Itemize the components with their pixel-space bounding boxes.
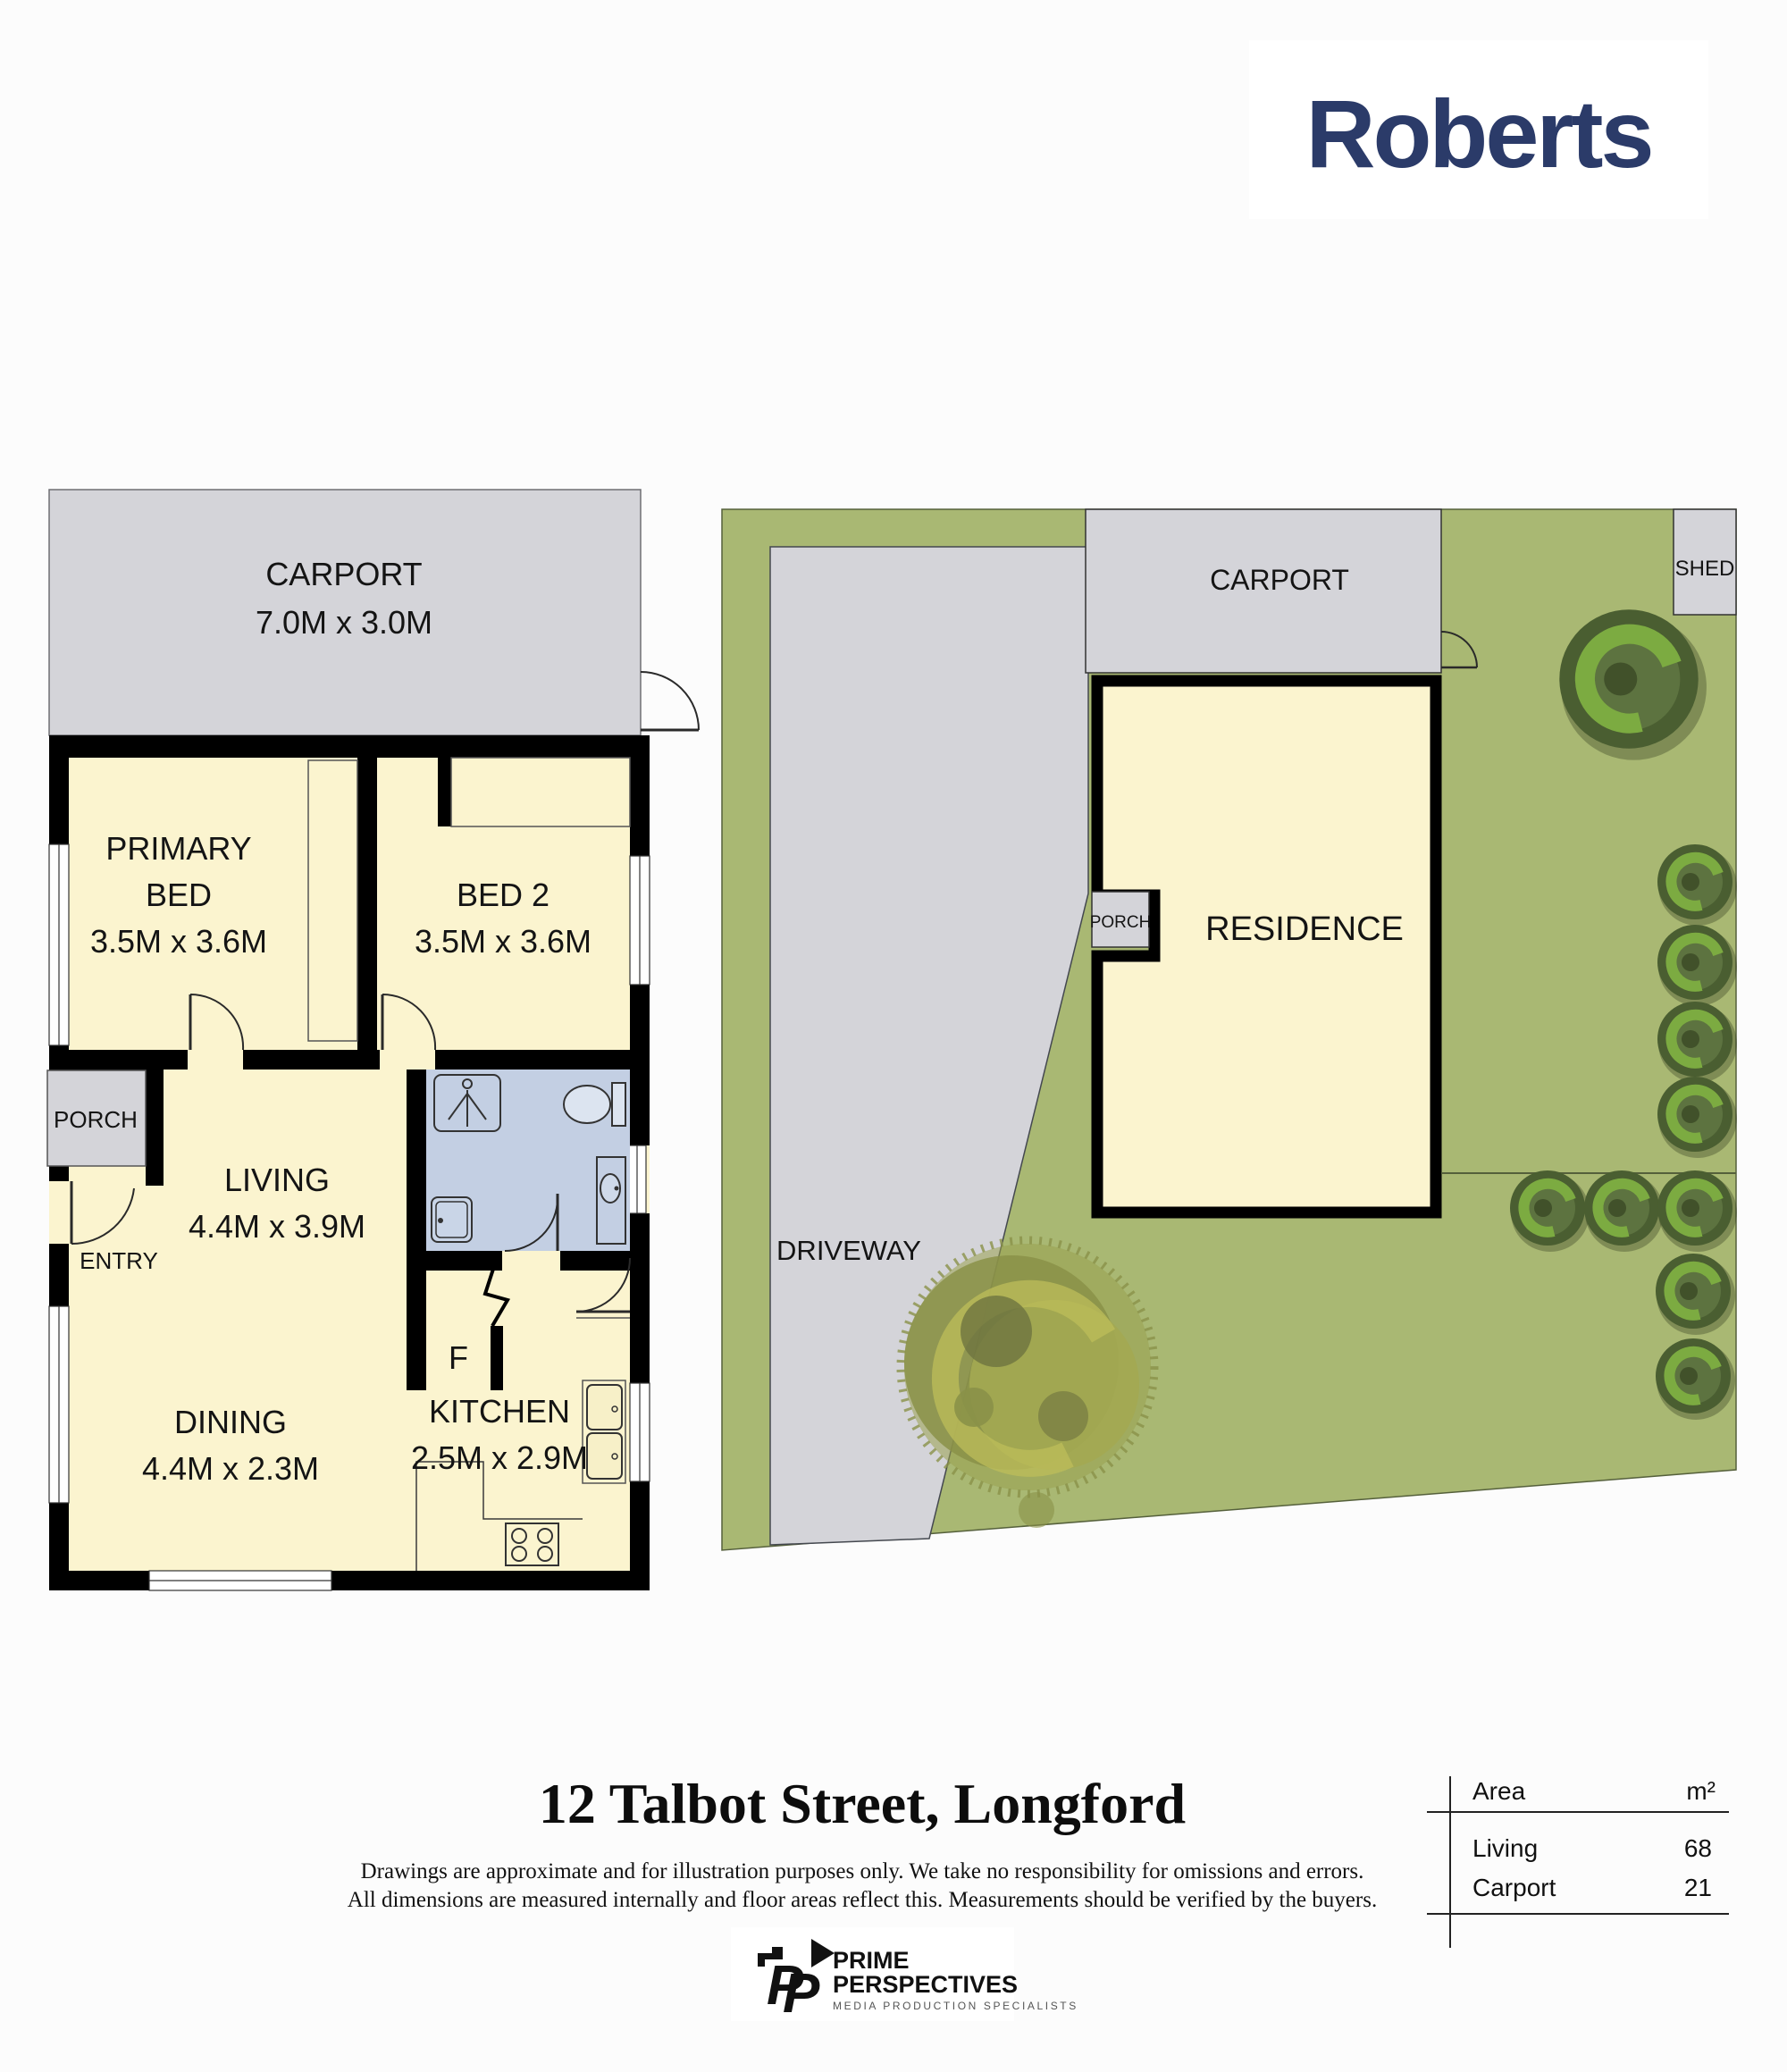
vanity-basin — [597, 1157, 625, 1244]
living-dims: 4.4M x 3.9M — [189, 1208, 365, 1245]
site-residence-label: RESIDENCE — [1205, 910, 1404, 948]
area-table-header-label: Area — [1472, 1777, 1526, 1805]
fp-porch-label: PORCH — [54, 1106, 138, 1133]
fp-kitchen-dims: 2.5M x 2.9M — [411, 1439, 588, 1476]
disclaimer-line-2: All dimensions are measured internally a… — [348, 1888, 1377, 1912]
site-carport-label: CARPORT — [1210, 564, 1349, 596]
bed2-dims: 3.5M x 3.6M — [415, 923, 591, 960]
floorplan-page: Roberts — [0, 0, 1787, 2072]
window-kitchen — [630, 1383, 650, 1481]
area-row-label: Carport — [1472, 1874, 1556, 1901]
prime-perspectives-logo: P P PRIME PERSPECTIVES MEDIA PRODUCTION … — [731, 1927, 1078, 2025]
window-bed2 — [630, 856, 650, 985]
primary-bed-wardrobe — [308, 760, 357, 1041]
roberts-logo: Roberts — [1249, 40, 1708, 219]
stove-cooktop — [506, 1523, 558, 1565]
bed2-label: BED 2 — [457, 877, 550, 913]
roberts-logo-text: Roberts — [1305, 80, 1651, 188]
window-bottom — [149, 1571, 331, 1590]
site-plan: CARPORT SHED RESIDENCE PORCH DRIVEWAY — [722, 509, 1737, 1550]
fp-carport-dims: 7.0M x 3.0M — [256, 604, 432, 641]
window-primary-bed — [49, 844, 69, 1045]
entry-label: ENTRY — [80, 1247, 158, 1274]
dining-dims: 4.4M x 2.3M — [142, 1450, 319, 1487]
window-bathroom — [628, 1145, 646, 1213]
address-title: 12 Talbot Street, Longford — [539, 1772, 1186, 1835]
area-row-value: 68 — [1684, 1834, 1712, 1862]
toilet — [564, 1083, 625, 1126]
floor-plan: CARPORT 7.0M x 3.0M PRIMARY BED 3.5M x 3… — [47, 490, 699, 1590]
window-dining — [49, 1306, 69, 1503]
svg-text:P: P — [783, 1963, 820, 2025]
area-row-value: 21 — [1684, 1874, 1712, 1901]
primary-bed-label-1: PRIMARY — [105, 830, 251, 867]
area-table-row: Living 68 — [1472, 1834, 1712, 1862]
laundry-tub — [432, 1197, 472, 1242]
dining-label: DINING — [174, 1404, 287, 1440]
footer: 12 Talbot Street, Longford Drawings are … — [348, 1772, 1729, 2025]
fp-kitchen-label: KITCHEN — [429, 1393, 570, 1430]
prime-perspectives-tagline: MEDIA PRODUCTION SPECIALISTS — [833, 2000, 1078, 2012]
site-driveway-label: DRIVEWAY — [776, 1235, 921, 1266]
fridge-label: F — [449, 1339, 468, 1376]
site-shed-label: SHED — [1675, 557, 1735, 581]
living-label: LIVING — [224, 1162, 330, 1198]
primary-bed-label-2: BED — [146, 877, 212, 913]
site-porch-label: PORCH — [1090, 913, 1152, 932]
carport-door-arc — [641, 672, 699, 730]
area-table-row: Carport 21 — [1472, 1874, 1712, 1901]
area-table: Area m² Living 68 Carport 21 — [1427, 1776, 1729, 1948]
area-table-header-unit: m² — [1686, 1777, 1716, 1805]
prime-perspectives-name-2: PERSPECTIVES — [833, 1971, 1018, 1998]
shower — [434, 1075, 500, 1131]
fp-carport-label: CARPORT — [265, 556, 422, 592]
primary-bed-dims: 3.5M x 3.6M — [90, 923, 267, 960]
area-row-label: Living — [1472, 1834, 1538, 1862]
disclaimer-line-1: Drawings are approximate and for illustr… — [361, 1859, 1364, 1883]
prime-perspectives-name-1: PRIME — [833, 1947, 910, 1974]
